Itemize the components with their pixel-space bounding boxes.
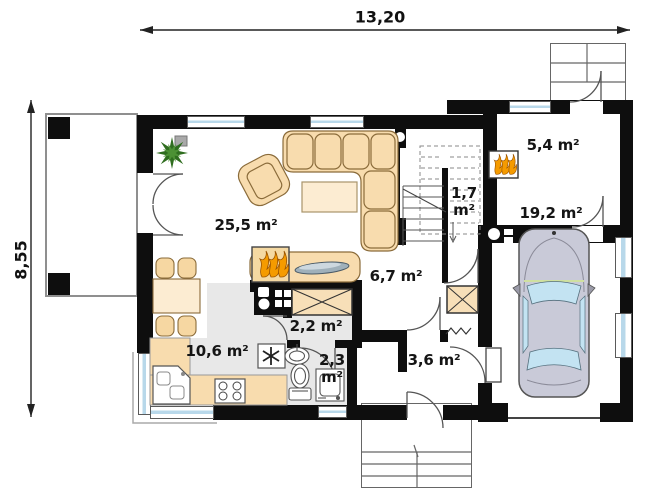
room-label-garage: 19,2 m² <box>519 204 582 222</box>
wardrobe-x-closet <box>447 286 478 313</box>
height-dimension-label: 8,55 <box>12 240 31 279</box>
room-label-stairs: 1,7 m² <box>451 185 477 220</box>
dining-chair <box>156 316 174 336</box>
dining-chair <box>178 258 196 278</box>
fireplace <box>252 247 289 282</box>
dining-set <box>153 258 200 336</box>
room-label-hall: 6,7 m² <box>370 267 423 285</box>
side-porch-steps-lines <box>550 43 625 82</box>
boiler-stove <box>489 151 518 178</box>
plan-drawing-layer <box>0 0 647 502</box>
wardrobe-x-pantry <box>292 289 352 315</box>
wc-basin <box>285 344 309 365</box>
room-label-kitchen: 10,6 m² <box>185 342 248 360</box>
corner-sink <box>153 366 190 404</box>
room-label-boiler: 5,4 m² <box>527 136 580 154</box>
dining-table <box>153 279 200 313</box>
mirror-right <box>588 284 595 296</box>
dining-chair <box>156 258 174 278</box>
side-window-right <box>580 296 585 353</box>
boiler-exterior-door <box>570 71 601 102</box>
mirror-left <box>513 284 520 296</box>
floor-plan: 13,20 8,55 25,5 m² 5,4 m² 1,7 m² 19,2 m²… <box>0 0 647 502</box>
understair-closet-door <box>444 249 478 283</box>
width-dimension-line <box>140 26 630 34</box>
kitchen-pantry-door <box>263 316 287 340</box>
room-label-living: 25,5 m² <box>214 216 277 234</box>
windshield <box>527 282 581 305</box>
cooktop <box>215 379 245 403</box>
car-icon <box>513 229 595 397</box>
coffee-table <box>302 182 357 212</box>
width-dimension-label: 13,20 <box>355 8 406 27</box>
front-door <box>407 392 443 428</box>
room-label-entry: 3,6 m² <box>408 351 461 369</box>
room-label-pantry: 2,2 m² <box>290 317 343 335</box>
radiator-zigzag-icon <box>446 328 471 334</box>
fridge <box>258 344 285 368</box>
side-window-left <box>523 296 528 353</box>
potted-plant-icon <box>156 136 188 169</box>
hall-entry-door <box>407 297 440 330</box>
room-label-wc: 2,3 m² <box>319 352 345 387</box>
dining-chair <box>178 316 196 336</box>
main-porch-steps-lines <box>362 445 471 487</box>
terrace-french-door <box>153 174 183 235</box>
toilet <box>289 364 311 400</box>
flue-circle <box>488 228 500 240</box>
